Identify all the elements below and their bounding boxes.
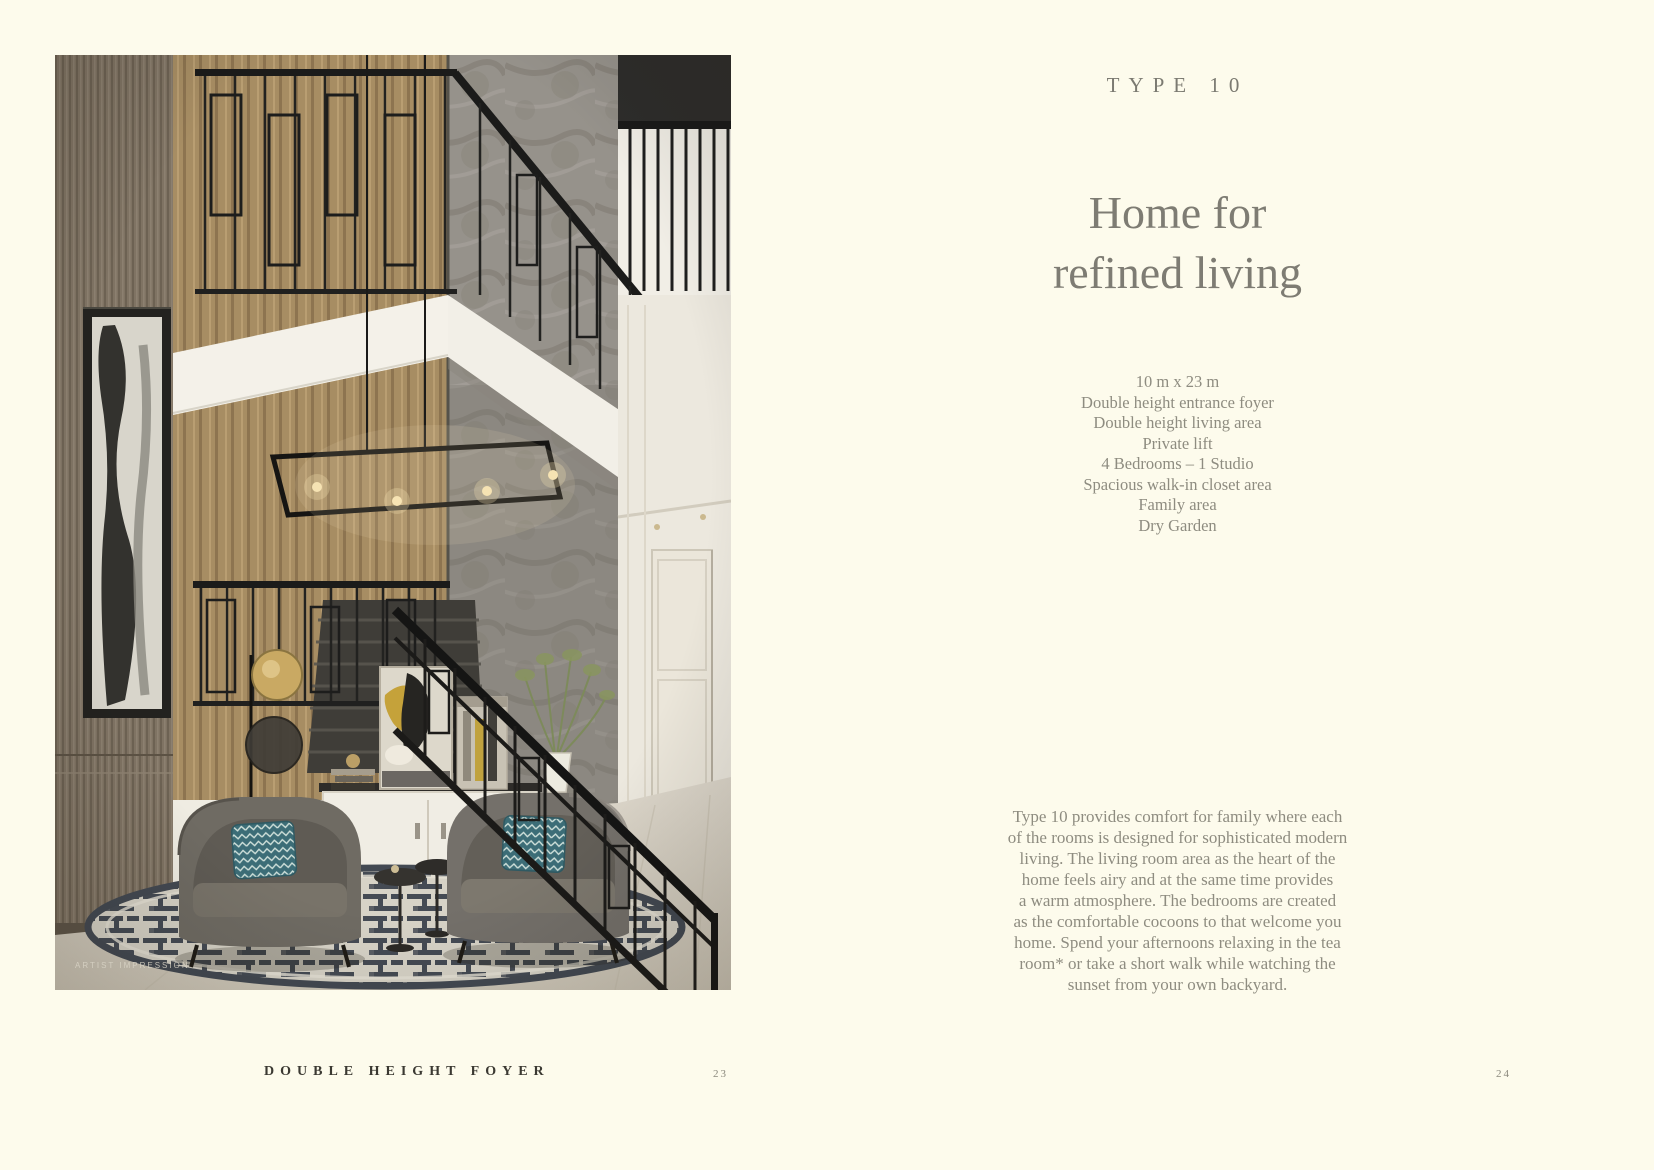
page-title-line: refined living [955, 243, 1400, 303]
description: Type 10 provides comfort for family wher… [955, 806, 1400, 995]
spec-item: Family area [955, 495, 1400, 516]
description-line: as the comfortable cocoons to that welco… [955, 911, 1400, 932]
text-column: TYPE 10 Home for refined living 10 m x 2… [955, 0, 1400, 1170]
spec-item: Double height living area [955, 413, 1400, 434]
page-number-right: 24 [1496, 1068, 1511, 1080]
description-line: sunset from your own backyard. [955, 974, 1400, 995]
spec-item: Spacious walk-in closet area [955, 475, 1400, 496]
foyer-photo-illustration [55, 55, 731, 990]
spec-item: Double height entrance foyer [955, 393, 1400, 414]
type-label: TYPE 10 [955, 73, 1400, 98]
page-title-line: Home for [955, 183, 1400, 243]
footer-section-label: DOUBLE HEIGHT FOYER [264, 1064, 550, 1080]
brochure-page: { "photo": { "caption": "ARTIST IMPRESSI… [0, 0, 1654, 1170]
description-line: of the rooms is designed for sophisticat… [955, 827, 1400, 848]
description-line: living. The living room area as the hear… [955, 848, 1400, 869]
spec-item: 4 Bedrooms – 1 Studio [955, 454, 1400, 475]
photo-caption: ARTIST IMPRESSION [75, 961, 190, 970]
description-line: room* or take a short walk while watchin… [955, 953, 1400, 974]
description-line: Type 10 provides comfort for family wher… [955, 806, 1400, 827]
spec-item: 10 m x 23 m [955, 372, 1400, 393]
description-line: a warm atmosphere. The bedrooms are crea… [955, 890, 1400, 911]
foyer-photo: ARTIST IMPRESSION [55, 55, 731, 990]
description-line: home feels airy and at the same time pro… [955, 869, 1400, 890]
spec-list: 10 m x 23 m Double height entrance foyer… [955, 372, 1400, 536]
spec-item: Dry Garden [955, 516, 1400, 537]
description-line: home. Spend your afternoons relaxing in … [955, 932, 1400, 953]
spec-item: Private lift [955, 434, 1400, 455]
page-number-left: 23 [713, 1068, 728, 1080]
page-title: Home for refined living [955, 183, 1400, 303]
